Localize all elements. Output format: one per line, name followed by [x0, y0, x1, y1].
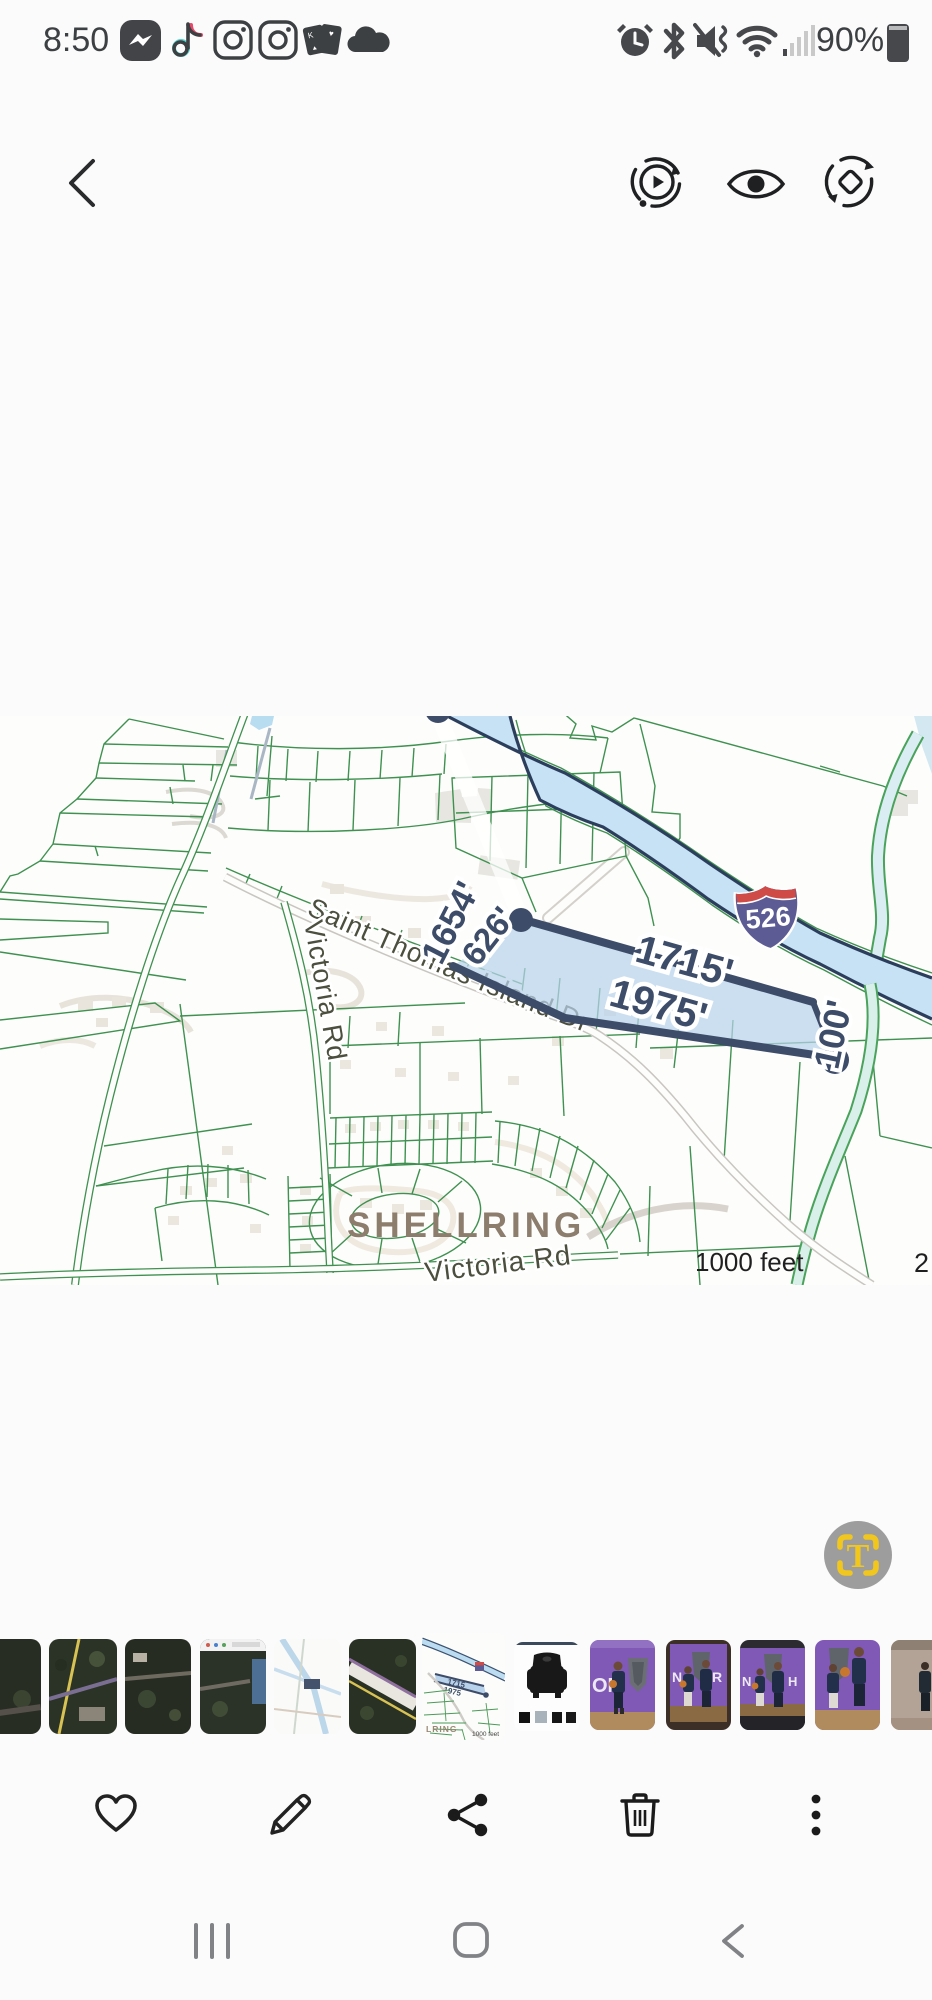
svg-text:1000 feet: 1000 feet — [472, 1731, 499, 1738]
svg-text:H: H — [788, 1674, 797, 1689]
svg-text:R: R — [712, 1669, 722, 1685]
svg-text:LRING: LRING — [426, 1724, 457, 1734]
svg-text:526: 526 — [744, 901, 792, 935]
svg-text:2: 2 — [914, 1248, 929, 1278]
svg-text:T: T — [847, 1538, 870, 1575]
svg-text:SHELLRING: SHELLRING — [347, 1206, 585, 1245]
svg-text:N: N — [742, 1674, 751, 1689]
svg-text:1000 feet: 1000 feet — [695, 1247, 804, 1277]
